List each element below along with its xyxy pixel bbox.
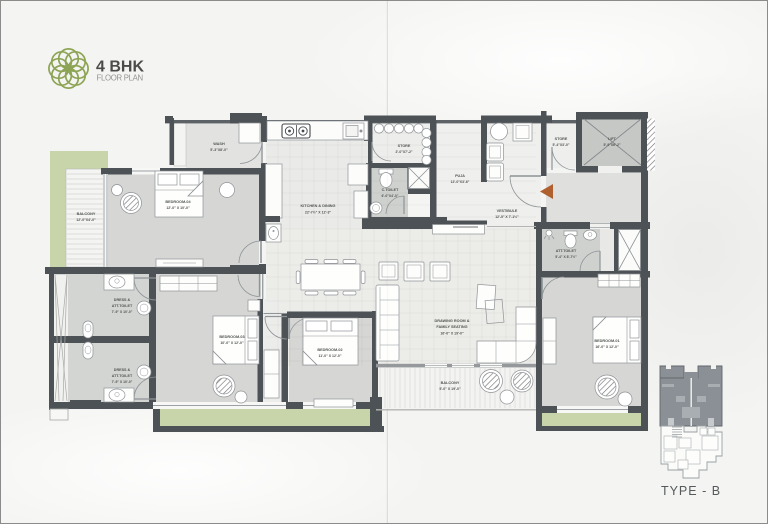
- svg-text:5'-3"X8'-0": 5'-3"X8'-0": [210, 148, 228, 152]
- svg-text:5'-9"X6'-2": 5'-9"X6'-2": [604, 143, 621, 147]
- svg-text:KITCHEN & DINING: KITCHEN & DINING: [300, 204, 335, 208]
- svg-text:BALCONY: BALCONY: [441, 381, 460, 385]
- svg-text:STORE: STORE: [555, 137, 568, 141]
- svg-text:7'-9" X 10'-0": 7'-9" X 10'-0": [112, 380, 133, 384]
- svg-text:WASH: WASH: [213, 142, 225, 146]
- svg-text:5'-0" X 19'-0": 5'-0" X 19'-0": [439, 387, 461, 391]
- svg-text:BEDROOM-04: BEDROOM-04: [165, 200, 191, 204]
- svg-text:BEDROOM-01: BEDROOM-01: [594, 339, 619, 343]
- svg-text:11'-0" X 12'-0": 11'-0" X 12'-0": [318, 354, 341, 358]
- svg-text:12'-0"X3'-6": 12'-0"X3'-6": [451, 180, 470, 184]
- svg-text:PUJA: PUJA: [455, 174, 465, 178]
- svg-text:STORE: STORE: [398, 144, 411, 148]
- svg-text:FLOOR PLAN: FLOOR PLAN: [97, 74, 143, 83]
- svg-text:DRESS &: DRESS &: [114, 298, 131, 302]
- svg-text:6'-0"X4'-0": 6'-0"X4'-0": [382, 194, 399, 198]
- svg-text:22'-7½" X 12'-3": 22'-7½" X 12'-3": [305, 211, 332, 215]
- svg-text:7'-9" X 10'-0": 7'-9" X 10'-0": [112, 310, 133, 314]
- svg-text:2'-0"X7'-2": 2'-0"X7'-2": [396, 150, 413, 154]
- svg-text:5'-4" X 8'-7½": 5'-4" X 8'-7½": [555, 255, 577, 259]
- svg-text:10'-0" X 12'-0": 10'-0" X 12'-0": [220, 341, 244, 345]
- svg-text:12'-0"X4'-0": 12'-0"X4'-0": [76, 218, 96, 222]
- svg-text:ATT.TOILET: ATT.TOILET: [556, 249, 577, 253]
- svg-text:ATT.TOILET: ATT.TOILET: [112, 304, 133, 308]
- svg-text:C.TOILET: C.TOILET: [382, 188, 399, 192]
- svg-text:BEDROOM-02: BEDROOM-02: [317, 348, 342, 352]
- svg-text:TYPE - B: TYPE - B: [661, 484, 721, 498]
- svg-text:DRAWING ROOM &: DRAWING ROOM &: [434, 319, 469, 323]
- svg-text:VESTIBULE: VESTIBULE: [497, 209, 518, 213]
- svg-text:16'-0" X 19'-0": 16'-0" X 19'-0": [440, 332, 464, 336]
- svg-text:BALCONY: BALCONY: [77, 212, 96, 216]
- svg-text:FAMILY SEATING: FAMILY SEATING: [436, 325, 467, 329]
- svg-text:5'-4"X3'-0": 5'-4"X3'-0": [553, 143, 570, 147]
- svg-text:LIFT: LIFT: [608, 137, 617, 141]
- svg-text:12'-0" X 10'-0": 12'-0" X 10'-0": [166, 206, 190, 210]
- svg-text:DRESS &: DRESS &: [114, 368, 131, 372]
- svg-text:BEDROOM-03: BEDROOM-03: [219, 335, 244, 339]
- svg-text:12'-5" X 7'-1½": 12'-5" X 7'-1½": [495, 215, 519, 219]
- svg-text:16'-0" X 12'-0": 16'-0" X 12'-0": [595, 345, 619, 349]
- svg-text:ATT.TOILET: ATT.TOILET: [112, 374, 133, 378]
